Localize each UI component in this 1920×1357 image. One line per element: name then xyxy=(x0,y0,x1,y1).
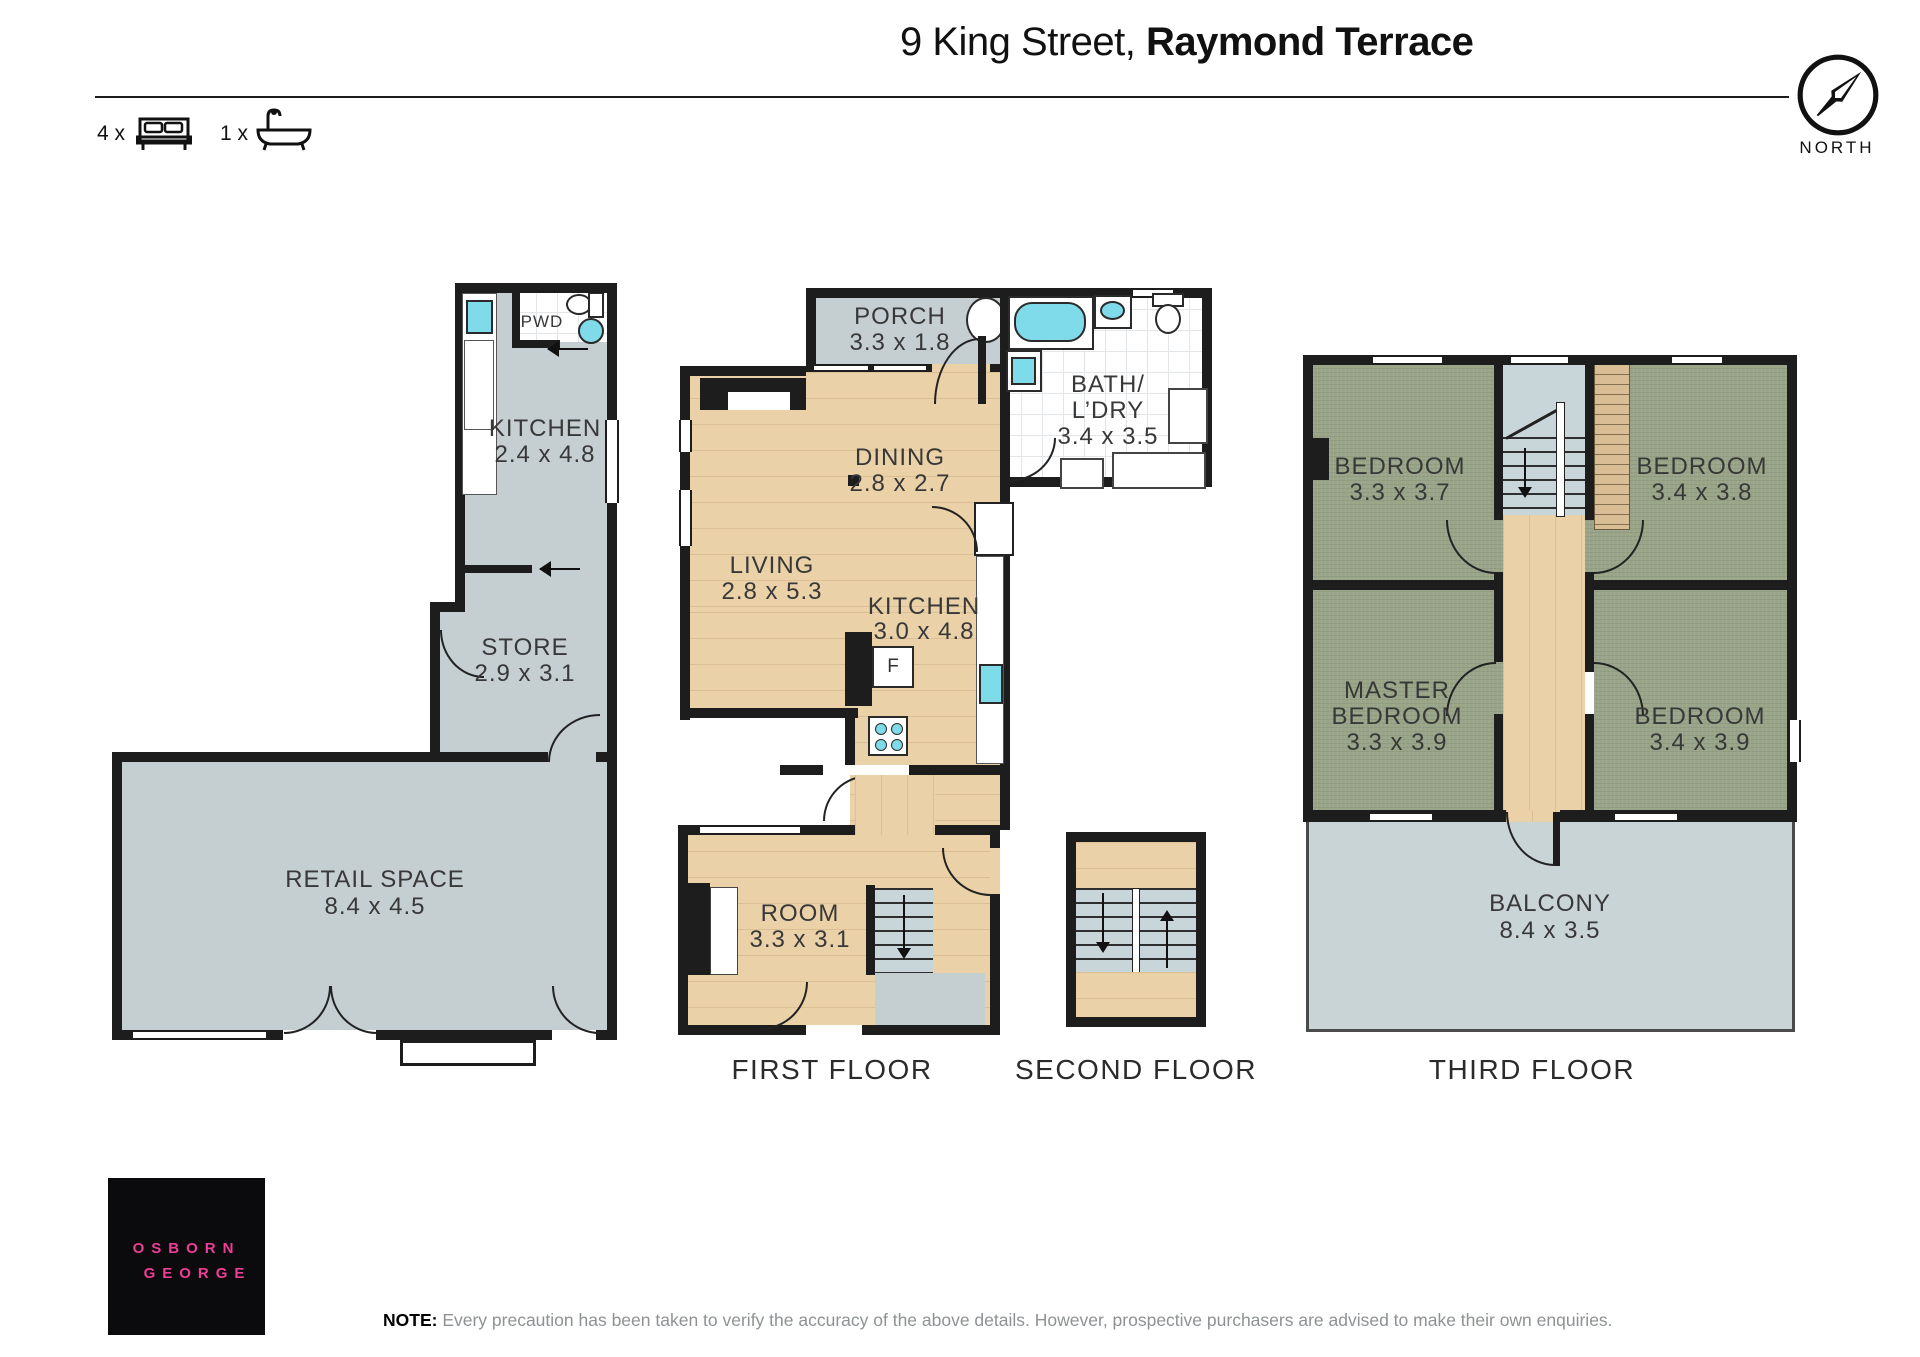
wall xyxy=(1494,572,1503,662)
room-dims: 3.0 x 4.8 xyxy=(834,618,1014,646)
door-opening xyxy=(823,765,909,775)
wall xyxy=(1303,580,1494,590)
stairwell-landing xyxy=(1503,365,1585,437)
pwd-basin-icon xyxy=(578,318,604,344)
wall xyxy=(455,283,617,293)
floorplan-page: 9 King Street, Raymond Terrace 4 x 1 x N… xyxy=(0,0,1920,1357)
bed-icon xyxy=(136,113,192,151)
second-floor-landing-top xyxy=(1076,842,1196,888)
room-dims: 3.4 x 3.9 xyxy=(1610,729,1790,757)
floor-title-third: THIRD FLOOR xyxy=(1392,1054,1672,1086)
kitchen-counter xyxy=(976,556,1004,764)
room-name: PORCH xyxy=(810,303,990,331)
wall xyxy=(112,752,122,1040)
room-name: KITCHEN xyxy=(455,415,635,443)
stair-rail xyxy=(1556,402,1565,517)
window xyxy=(700,825,800,835)
floor-title-second: SECOND FLOOR xyxy=(996,1054,1276,1086)
shop-kitchen-sink-icon xyxy=(466,300,493,334)
room-dims: 3.3 x 3.9 xyxy=(1307,729,1487,757)
window xyxy=(1511,355,1568,365)
room-dims: 2.8 x 2.7 xyxy=(810,470,990,498)
wall xyxy=(112,752,548,762)
room-dims: 3.3 x 3.1 xyxy=(710,926,890,954)
room-name: PWD xyxy=(510,312,574,332)
stair-divider xyxy=(1132,888,1140,974)
room-dims: 2.9 x 3.1 xyxy=(435,660,615,688)
wall xyxy=(845,708,855,772)
stairs-down-arrow xyxy=(903,895,905,957)
bath-icon xyxy=(254,108,314,152)
room-dims: 2.4 x 4.8 xyxy=(455,441,635,469)
title-street: 9 King Street, xyxy=(900,20,1146,64)
fridge-icon: F xyxy=(872,646,914,688)
third-floor-hallway xyxy=(1503,490,1585,820)
window xyxy=(874,364,926,372)
wall xyxy=(1494,365,1503,520)
stairs-up-arrow xyxy=(1166,912,1168,968)
hall-connector-floor xyxy=(855,775,935,835)
room-name: BALCONY xyxy=(1460,890,1640,918)
window xyxy=(814,364,868,372)
room-name: BEDROOM xyxy=(1307,703,1487,731)
wall xyxy=(607,762,617,1040)
bath-count-label: 1 x xyxy=(220,122,248,146)
room-name: BATH/ xyxy=(1018,371,1198,399)
note-label: NOTE: xyxy=(383,1310,437,1330)
logo-line1: OSBORN xyxy=(108,1240,265,1257)
room-name: KITCHEN xyxy=(834,593,1014,621)
window xyxy=(1615,812,1677,822)
window xyxy=(679,490,692,546)
window xyxy=(133,1030,266,1040)
room-name: MASTER xyxy=(1307,677,1487,705)
wall xyxy=(455,565,532,573)
bathtub-basin-icon xyxy=(1014,302,1086,342)
page-title: 9 King Street, Raymond Terrace xyxy=(900,20,1450,65)
room-name: L’DRY xyxy=(1018,397,1198,425)
stairs-down-arrow xyxy=(1524,448,1526,496)
room-dims: 3.4 x 3.5 xyxy=(1018,423,1198,451)
door-opening xyxy=(990,848,1000,894)
room-dims: 8.4 x 4.5 xyxy=(235,893,515,921)
store-entry-arrow xyxy=(540,568,580,570)
room-dims: 3.3 x 3.7 xyxy=(1310,479,1490,507)
wall xyxy=(680,708,858,718)
sink-bowl-icon xyxy=(1100,301,1125,320)
fireplace-hearth xyxy=(728,392,790,410)
laundry-cabinet xyxy=(1060,458,1104,489)
wall xyxy=(596,752,617,762)
bed-count-label: 4 x xyxy=(97,122,125,146)
bay-window xyxy=(400,1040,536,1066)
window xyxy=(1672,355,1722,365)
wall xyxy=(1585,714,1594,820)
room-name: DINING xyxy=(810,444,990,472)
stairs-down-arrow xyxy=(1102,893,1104,951)
wall xyxy=(1560,810,1797,822)
wall xyxy=(607,283,617,762)
floor-title-first: FIRST FLOOR xyxy=(692,1054,972,1086)
room-name: LIVING xyxy=(682,552,862,580)
wall xyxy=(1585,572,1594,672)
wall xyxy=(1594,580,1797,590)
room-builtin xyxy=(682,883,710,975)
window xyxy=(679,420,692,452)
kitchen-sink-icon xyxy=(979,664,1003,704)
wall xyxy=(1585,365,1594,520)
room-dims: 3.4 x 3.8 xyxy=(1612,479,1792,507)
living-floor-lower xyxy=(688,612,850,712)
window xyxy=(1370,812,1432,822)
door-opening xyxy=(806,1025,862,1035)
room-dims: 3.3 x 1.8 xyxy=(810,329,990,357)
disclaimer-note: NOTE: Every precaution has been taken to… xyxy=(383,1310,1643,1331)
wall xyxy=(680,366,806,376)
agency-logo: OSBORN GEORGE xyxy=(108,1178,265,1335)
room-name: ROOM xyxy=(710,900,890,928)
second-floor-landing-bottom xyxy=(1076,972,1196,1017)
room-name: RETAIL SPACE xyxy=(235,866,515,894)
stair-landing-floor xyxy=(875,973,985,1025)
room-dims: 8.4 x 3.5 xyxy=(1460,917,1640,945)
room-name: BEDROOM xyxy=(1310,453,1490,481)
toilet-icon xyxy=(1155,304,1181,334)
logo-line2: GEORGE xyxy=(108,1265,265,1282)
door-recess xyxy=(974,502,1014,556)
third-floor-stairs xyxy=(1503,437,1585,515)
room-name: BEDROOM xyxy=(1610,703,1790,731)
window xyxy=(1373,355,1442,365)
pwd-entry-arrow xyxy=(548,348,588,350)
compass-label: NORTH xyxy=(1787,138,1887,158)
note-text: Every precaution has been taken to verif… xyxy=(437,1310,1612,1330)
title-suburb: Raymond Terrace xyxy=(1146,20,1473,64)
second-floor-stairs-up xyxy=(1140,888,1196,972)
header-divider xyxy=(95,96,1789,98)
wall xyxy=(1494,714,1503,820)
pwd-cistern-icon xyxy=(588,292,604,318)
room-name: STORE xyxy=(435,634,615,662)
compass-icon xyxy=(1795,52,1881,138)
room-name: BEDROOM xyxy=(1612,453,1792,481)
stove-icon xyxy=(868,716,908,756)
laundry-cabinet xyxy=(1112,452,1206,489)
